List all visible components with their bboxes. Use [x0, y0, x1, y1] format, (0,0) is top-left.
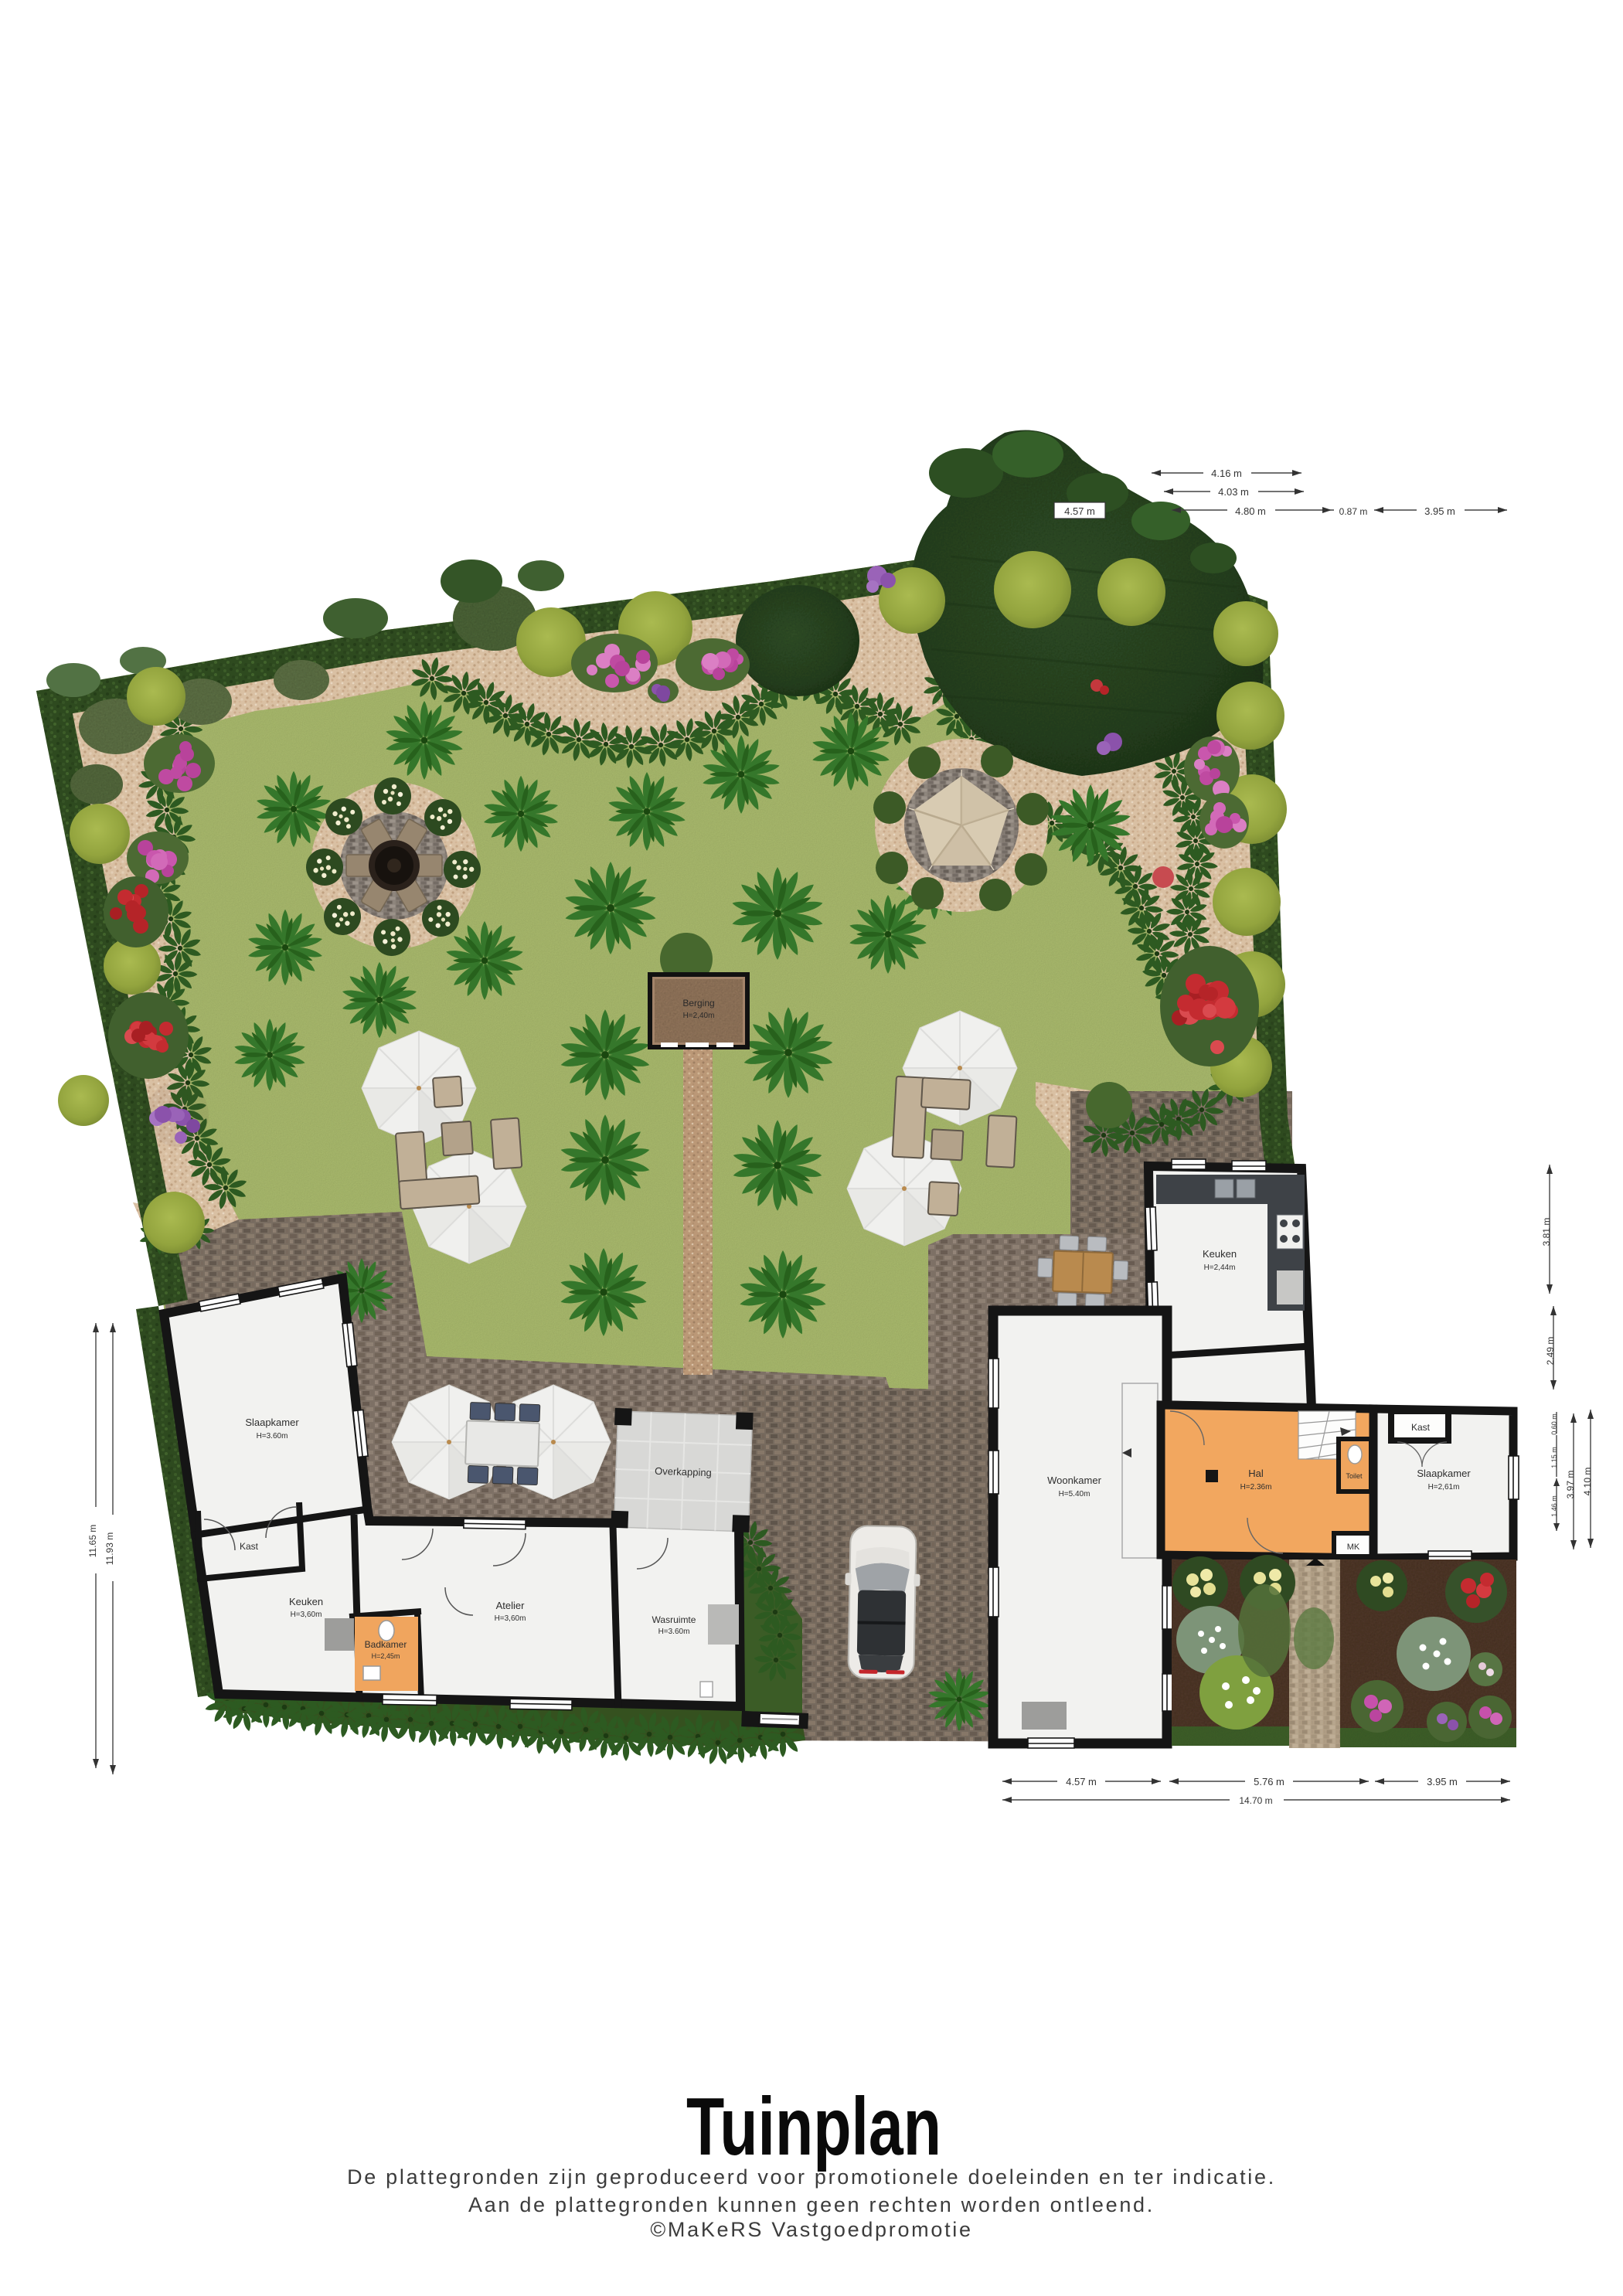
- svg-text:H=2.36m: H=2.36m: [1240, 1483, 1272, 1492]
- svg-text:0.60 m: 0.60 m: [1550, 1413, 1558, 1435]
- svg-text:11.93 m: 11.93 m: [104, 1532, 115, 1565]
- svg-text:3.97 m: 3.97 m: [1565, 1471, 1576, 1499]
- svg-text:4.16 m: 4.16 m: [1211, 468, 1242, 479]
- svg-text:2.49 m: 2.49 m: [1545, 1337, 1556, 1366]
- svg-text:H=3.60m: H=3.60m: [658, 1628, 690, 1636]
- svg-text:Kast: Kast: [240, 1541, 259, 1552]
- svg-text:Slaapkamer: Slaapkamer: [245, 1417, 299, 1428]
- svg-text:Badkamer: Badkamer: [365, 1639, 407, 1650]
- svg-text:H=2,61m: H=2,61m: [1428, 1483, 1460, 1492]
- svg-text:4.57 m: 4.57 m: [1066, 1776, 1097, 1787]
- svg-text:Overkapping: Overkapping: [655, 1465, 712, 1479]
- svg-text:0.87 m: 0.87 m: [1339, 506, 1368, 517]
- svg-text:5.76 m: 5.76 m: [1254, 1776, 1284, 1787]
- svg-text:1.46 m: 1.46 m: [1550, 1495, 1558, 1517]
- svg-text:Atelier: Atelier: [496, 1600, 526, 1611]
- svg-text:Tuinplan: Tuinplan: [686, 2081, 941, 2172]
- svg-text:Toilet: Toilet: [1346, 1472, 1363, 1480]
- svg-text:4.57 m: 4.57 m: [1064, 505, 1095, 517]
- svg-text:14.70 m: 14.70 m: [1239, 1795, 1272, 1806]
- svg-text:4.03 m: 4.03 m: [1218, 486, 1249, 498]
- svg-text:H=5.40m: H=5.40m: [1059, 1490, 1091, 1498]
- svg-text:Woonkamer: Woonkamer: [1047, 1475, 1102, 1486]
- svg-text:4.10 m: 4.10 m: [1582, 1468, 1593, 1496]
- svg-text:4.80 m: 4.80 m: [1235, 505, 1266, 517]
- svg-text:H=3,60m: H=3,60m: [495, 1614, 526, 1623]
- svg-text:H=2,45m: H=2,45m: [372, 1652, 400, 1660]
- svg-text:3.95 m: 3.95 m: [1424, 505, 1455, 517]
- svg-text:Keuken: Keuken: [1203, 1248, 1237, 1260]
- svg-text:Berging: Berging: [682, 998, 714, 1009]
- svg-text:H=2,44m: H=2,44m: [1204, 1264, 1236, 1272]
- svg-text:H=2,40m: H=2,40m: [683, 1012, 715, 1020]
- svg-text:Wasruimte: Wasruimte: [652, 1614, 696, 1625]
- svg-text:Slaapkamer: Slaapkamer: [1417, 1468, 1471, 1479]
- svg-text:3.81 m: 3.81 m: [1541, 1218, 1552, 1247]
- svg-text:MK: MK: [1347, 1543, 1360, 1552]
- svg-text:Kast: Kast: [1411, 1422, 1431, 1433]
- svg-text:H=3,60m: H=3,60m: [291, 1611, 322, 1619]
- svg-text:11.65 m: 11.65 m: [87, 1525, 98, 1557]
- svg-text:Keuken: Keuken: [289, 1596, 323, 1607]
- svg-text:©MaKeRS Vastgoedpromotie: ©MaKeRS Vastgoedpromotie: [650, 2218, 972, 2241]
- svg-text:Hal: Hal: [1248, 1468, 1264, 1479]
- svg-text:Aan de plattegronden kunnen ge: Aan de plattegronden kunnen geen rechten…: [468, 2193, 1155, 2216]
- svg-text:H=3.60m: H=3.60m: [257, 1432, 288, 1441]
- svg-text:1.15 m: 1.15 m: [1550, 1447, 1558, 1468]
- svg-text:De plattegronden zijn geproduc: De plattegronden zijn geproduceerd voor …: [347, 2165, 1276, 2189]
- svg-text:3.95 m: 3.95 m: [1427, 1776, 1458, 1787]
